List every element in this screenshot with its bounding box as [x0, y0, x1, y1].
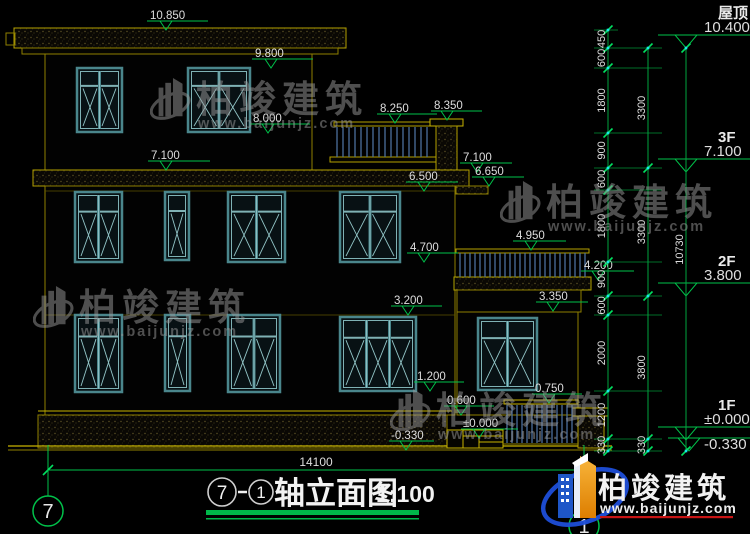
dim-value: 3800: [636, 355, 648, 379]
watermark-text: 柏竣建筑: [196, 78, 368, 120]
marker-label: 3.200: [394, 295, 423, 307]
marker-label: 1.200: [417, 371, 446, 383]
terrace-railing-bottom: [330, 157, 436, 162]
dim-grip: [685, 450, 688, 453]
marker-label: 10.850: [150, 10, 185, 22]
dim-grip: [647, 295, 650, 298]
title-underline-thick: [206, 510, 419, 515]
dim-value: 900: [596, 270, 608, 288]
floor-elevation: ±0.000: [704, 411, 750, 428]
floor-level-marker: 2F3.800: [658, 253, 750, 296]
dim-grip: [647, 47, 650, 50]
marker-label: 3.350: [539, 291, 568, 303]
elevation-marker: 6.650: [472, 166, 524, 186]
drawing-scale: 1:100: [376, 481, 435, 507]
dim-value: 600: [596, 296, 608, 314]
dim-value: 3300: [636, 96, 648, 120]
dim-value: 600: [596, 49, 608, 67]
watermark-url: www.baijunjz.com: [437, 427, 595, 443]
dim-value: 900: [596, 141, 608, 159]
marker-label: 9.800: [255, 48, 284, 60]
watermark-text: 柏竣建筑: [546, 181, 718, 223]
elevation-canvas: 10.8509.8008.0008.2508.3507.1007.1006.65…: [0, 0, 750, 534]
watermark-text: 柏竣建筑: [79, 286, 251, 328]
slab-band-7100: [33, 170, 469, 186]
title-underline-thin: [206, 518, 419, 520]
marker-label: 4.700: [410, 242, 439, 254]
dim-value: 450: [596, 30, 608, 48]
watermark-url: www.baijunjz.com: [197, 116, 355, 132]
floor-level-marker: 3F7.100: [658, 129, 750, 172]
cad-elevation-drawing: 10.8509.8008.0008.2508.3507.1007.1006.65…: [0, 0, 750, 534]
window: [165, 192, 189, 260]
floor-triangle: [675, 35, 697, 48]
dim-grip: [607, 132, 610, 135]
title-axis-end: 1: [256, 483, 265, 502]
slab-step-right: [456, 186, 488, 194]
elevation-marker: 10.850: [147, 10, 208, 30]
balcony-railing-top: [456, 249, 589, 253]
elevation-marker: 8.350: [431, 100, 482, 120]
plinth-band: [38, 415, 447, 448]
watermark-url: www.baijunjz.com: [547, 219, 705, 235]
dim-value: 10730: [674, 234, 686, 265]
bottom-dim-label: 14100: [299, 455, 333, 469]
window: [340, 192, 400, 262]
marker-label: 8.350: [434, 100, 463, 112]
brand-logo-url: www.baijunjz.com: [599, 500, 737, 516]
floor-elevation: 7.100: [704, 143, 742, 160]
marker-label: 8.250: [380, 103, 409, 115]
marker-label: 7.100: [151, 150, 180, 162]
terrace-pillar: [436, 126, 457, 170]
brand-logo: 柏竣建筑 www.baijunjz.com: [535, 453, 737, 534]
marker-label: 6.650: [475, 166, 504, 178]
balcony-slab: [454, 277, 591, 290]
dim-value: 1800: [596, 88, 608, 112]
watermark-logo-icon: [497, 181, 542, 227]
title-axis-start: 7: [217, 483, 228, 504]
floor-level-marker: 屋顶10.400: [658, 5, 750, 48]
dim-grip: [647, 167, 650, 170]
elevation-marker: 8.250: [377, 103, 437, 123]
dim-value: 330: [636, 436, 648, 454]
axis-bubble-7-label: 7: [42, 501, 53, 523]
floor-elevation: 10.400: [704, 19, 750, 36]
watermark-text: 柏竣建筑: [436, 389, 608, 431]
dim-grip: [607, 261, 610, 264]
dim-value: 2000: [596, 341, 608, 365]
annotations: 14100 7 1 7 1 轴立面图 1:100: [33, 445, 599, 534]
brand-logo-underline: [600, 516, 733, 518]
dim-grip: [607, 167, 610, 170]
marker-triangle: [483, 177, 495, 186]
floor-elevation: 3.800: [704, 267, 742, 284]
watermark: 柏竣建筑www.baijunjz.com: [497, 181, 718, 235]
window: [340, 317, 416, 391]
floor-level-marker: 1F±0.000-0.330: [658, 397, 750, 453]
marker-label: 6.500: [409, 171, 438, 183]
dim-grip: [685, 47, 688, 50]
window: [77, 68, 122, 132]
window: [478, 318, 537, 390]
watermark-url: www.baijunjz.com: [80, 324, 238, 340]
roof-lip: [22, 48, 338, 54]
dim-value: 330: [596, 436, 608, 454]
marker-label: 4.950: [516, 230, 545, 242]
window: [228, 192, 285, 262]
marker-label: -0.330: [391, 430, 424, 442]
marker-label: 7.100: [463, 152, 492, 164]
floor-elevation-2: -0.330: [704, 436, 747, 453]
window: [75, 192, 122, 262]
roof-slab: [14, 28, 346, 48]
